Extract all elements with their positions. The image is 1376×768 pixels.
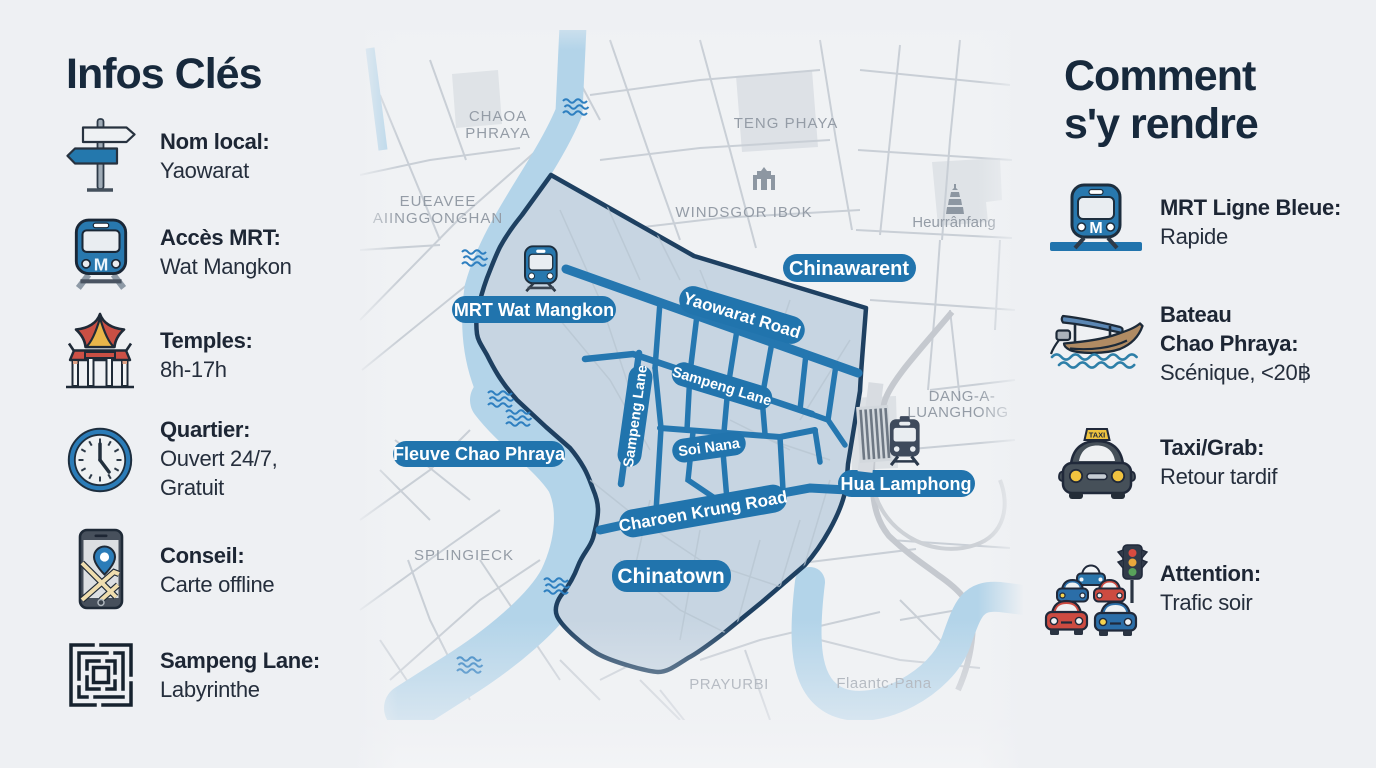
svg-text:Chinawarent: Chinawarent <box>789 258 909 280</box>
svg-text:M: M <box>1089 220 1102 237</box>
svg-text:Chinatown: Chinatown <box>617 565 724 588</box>
svg-text:Fleuve Chao Phraya: Fleuve Chao Phraya <box>393 444 566 464</box>
svg-text:M: M <box>94 254 109 274</box>
svg-text:MRT Wat Mangkon: MRT Wat Mangkon <box>454 300 614 320</box>
svg-text:EUEAVEE: EUEAVEE <box>400 193 477 210</box>
svg-text:WINDSGOR IBOK: WINDSGOR IBOK <box>675 204 812 221</box>
svg-text:Hua Lamphong: Hua Lamphong <box>841 474 972 494</box>
svg-text:TAXI: TAXI <box>1089 431 1106 440</box>
svg-text:SPLINGIECK: SPLINGIECK <box>414 547 514 564</box>
svg-text:PHRAYA: PHRAYA <box>465 125 530 142</box>
svg-text:TENG PHAYA: TENG PHAYA <box>734 115 838 132</box>
svg-text:CHAOA: CHAOA <box>469 108 527 125</box>
